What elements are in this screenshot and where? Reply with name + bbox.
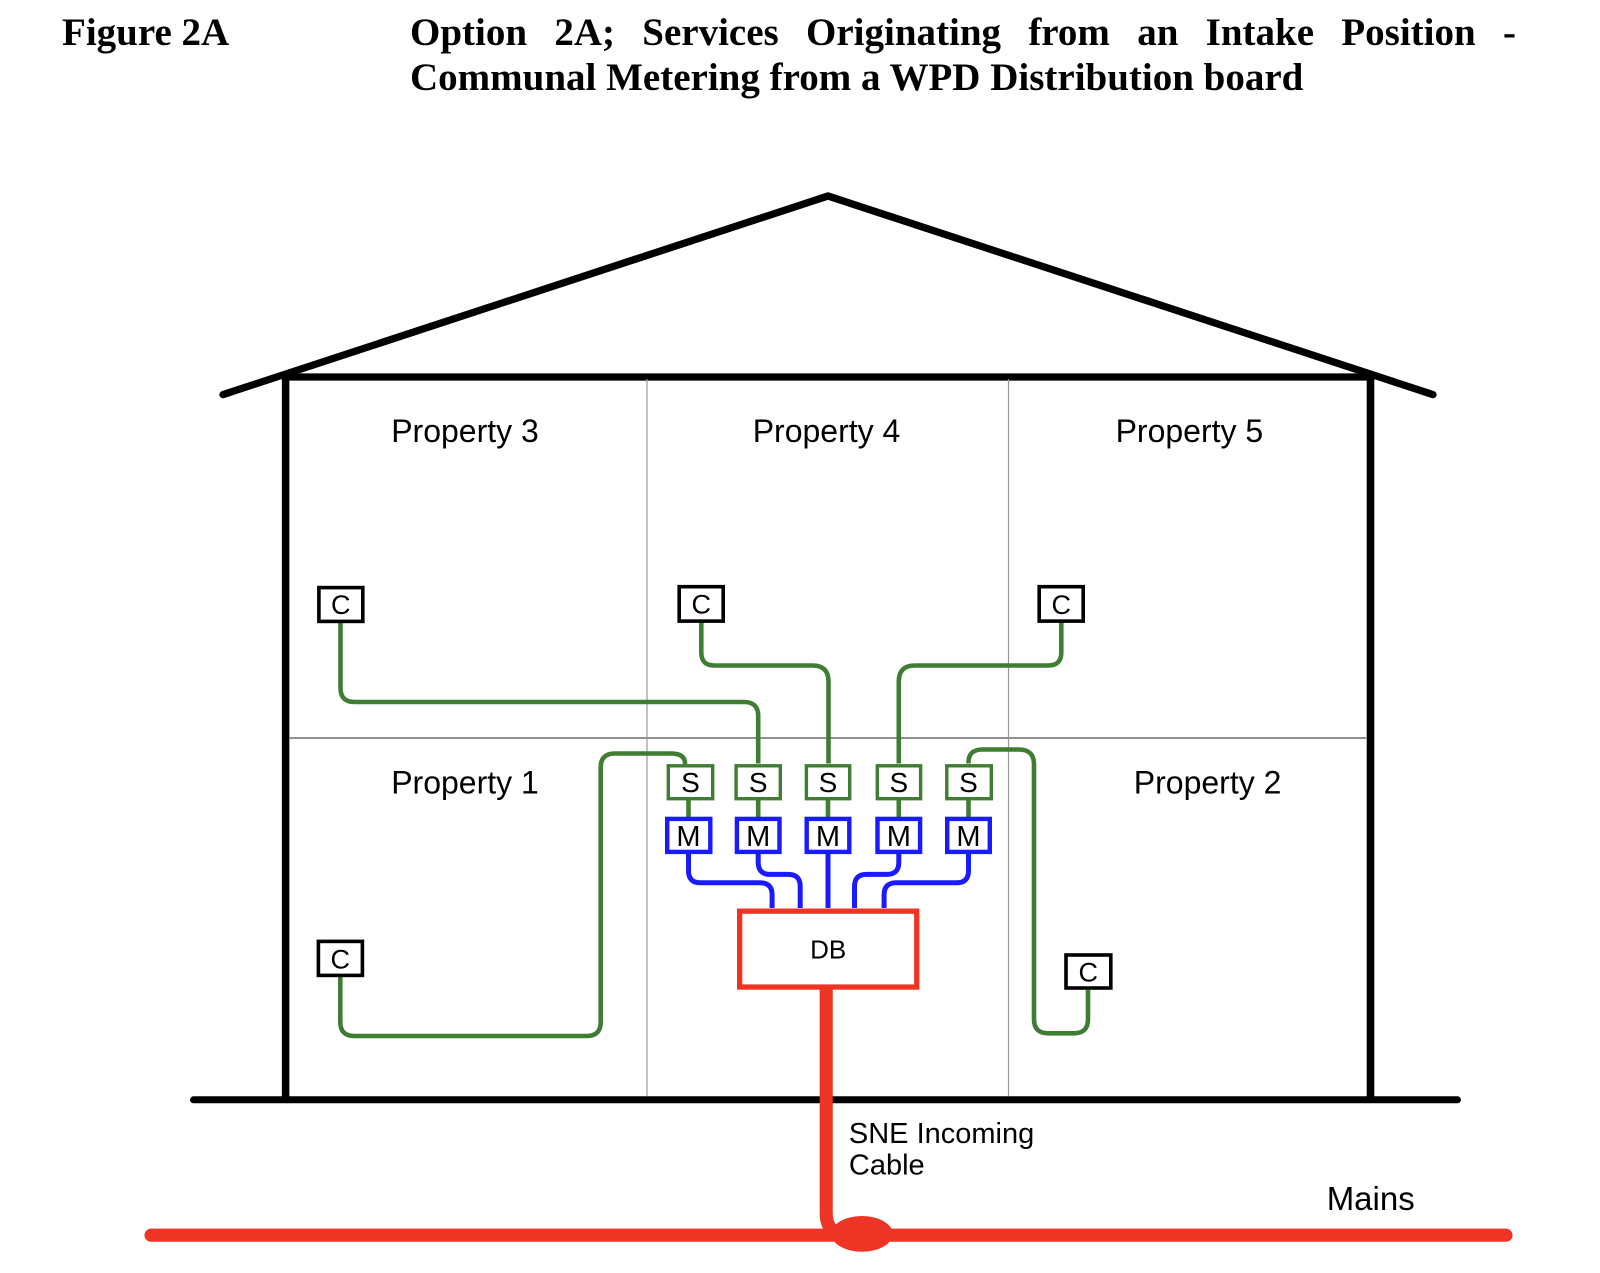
svg-text:M: M bbox=[816, 821, 840, 853]
svg-text:C: C bbox=[330, 944, 350, 974]
svg-text:S: S bbox=[749, 767, 768, 798]
svg-text:Property 5: Property 5 bbox=[1116, 413, 1264, 449]
svg-text:C: C bbox=[331, 590, 351, 620]
svg-text:M: M bbox=[887, 821, 911, 853]
svg-text:Property 2: Property 2 bbox=[1134, 764, 1282, 800]
svg-text:M: M bbox=[676, 821, 700, 853]
svg-text:Property 1: Property 1 bbox=[391, 764, 539, 800]
svg-text:S: S bbox=[819, 767, 838, 798]
svg-text:M: M bbox=[746, 821, 770, 853]
svg-text:C: C bbox=[1052, 590, 1072, 620]
svg-text:SNE Incoming: SNE Incoming bbox=[849, 1118, 1034, 1150]
svg-text:Property 4: Property 4 bbox=[753, 413, 901, 449]
svg-text:M: M bbox=[956, 821, 980, 853]
svg-text:C: C bbox=[1079, 957, 1099, 987]
svg-text:Cable: Cable bbox=[849, 1150, 925, 1182]
svg-text:Mains: Mains bbox=[1327, 1180, 1415, 1217]
svg-text:C: C bbox=[692, 590, 712, 620]
svg-text:S: S bbox=[889, 767, 908, 798]
svg-text:S: S bbox=[681, 767, 700, 798]
svg-text:DB: DB bbox=[810, 935, 846, 965]
svg-text:Property 3: Property 3 bbox=[391, 413, 539, 449]
svg-text:S: S bbox=[959, 767, 978, 798]
